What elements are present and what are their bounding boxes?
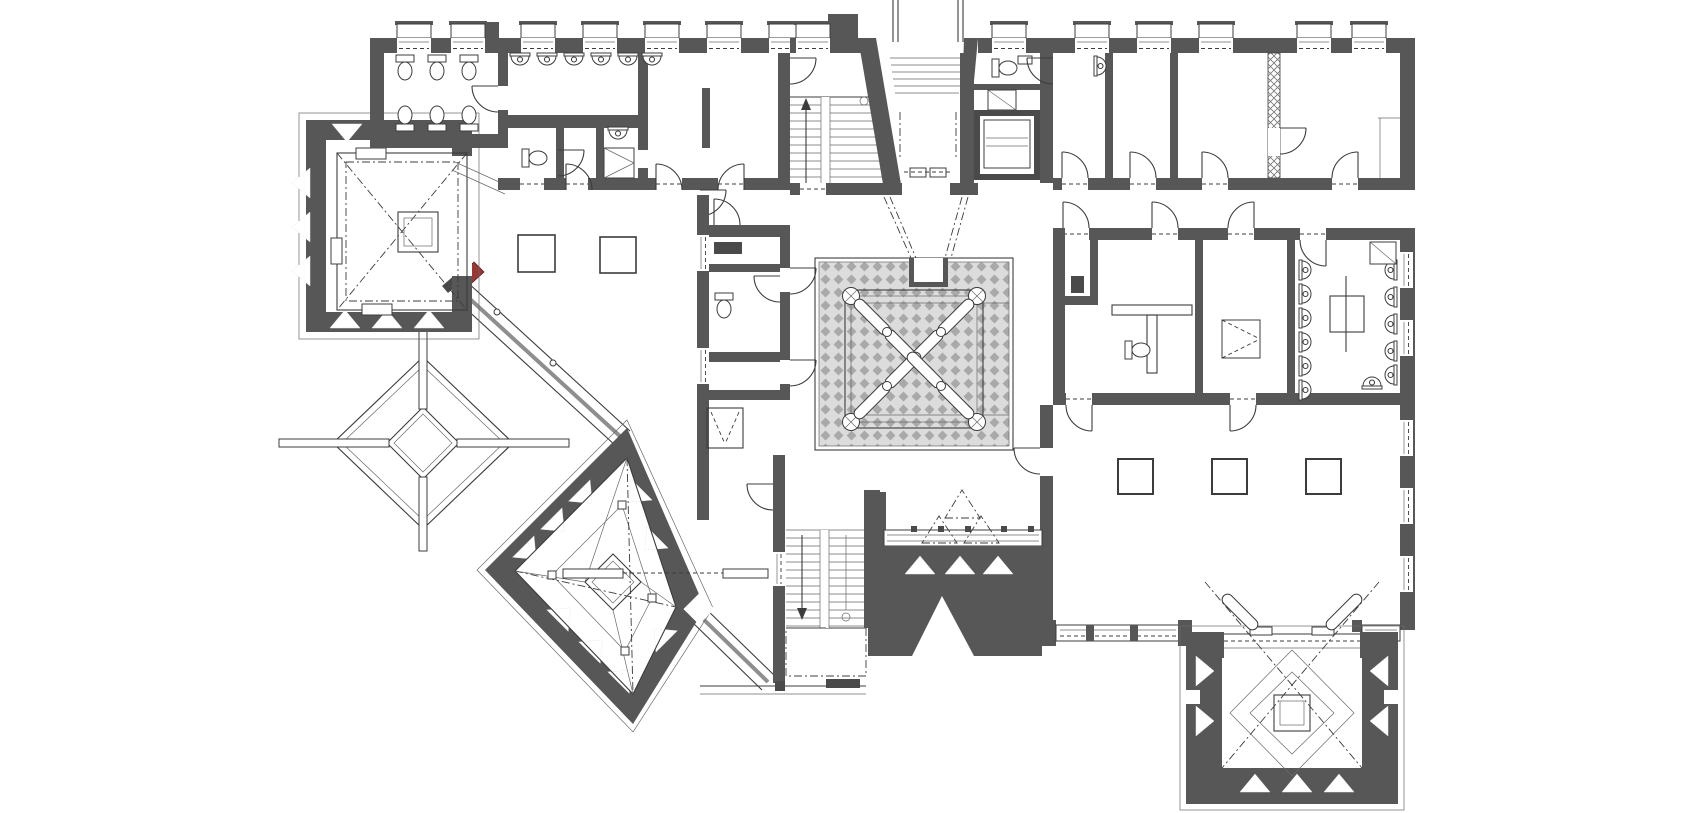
- southeast-skylight-tower: [1180, 582, 1404, 810]
- ornament-arm-north: [419, 328, 427, 409]
- wash-basin-icon: [510, 53, 530, 65]
- skylight-box: [707, 408, 743, 448]
- central-atrium: [815, 197, 1013, 450]
- urinal-icon: [1299, 260, 1311, 280]
- glass-block-partition: [1268, 53, 1280, 178]
- southeast-hall: [1014, 405, 1415, 646]
- canopy-dash-icon: [884, 197, 968, 258]
- ornament-arm-east: [457, 439, 569, 447]
- toilet-icon: [992, 59, 1017, 77]
- square-column-icon: [518, 235, 555, 272]
- window-icon: [697, 235, 710, 271]
- shower-icon: [604, 148, 634, 178]
- toilet-icon: [715, 293, 733, 318]
- south-window-band-west: [1040, 620, 1192, 646]
- floor-plan-canvas: [0, 0, 1700, 813]
- ornament-arm-south: [419, 477, 427, 551]
- seminar-partition: [702, 88, 710, 148]
- south-entrance: [868, 490, 1042, 656]
- entrance-rails: [893, 0, 963, 42]
- garden-diamond-ornament: [279, 328, 569, 551]
- northwest-wing: [370, 21, 838, 216]
- northeast-wing: [1053, 21, 1415, 190]
- double-door-leaf: [930, 168, 946, 177]
- tower-cross-bar: [563, 569, 623, 578]
- atrium-west-rooms: [697, 195, 816, 455]
- window-icon: [395, 21, 433, 53]
- southwest-skylight-tower: [477, 420, 768, 732]
- east-service-strip: [1053, 202, 1415, 431]
- double-door-leaf: [910, 168, 926, 177]
- west-hall-columns: [518, 235, 636, 273]
- elevator-car-icon: [984, 120, 1030, 168]
- door-swing-icon: [472, 86, 498, 112]
- square-column-icon: [1118, 459, 1153, 494]
- north-staircase: [790, 14, 902, 195]
- ornament-arm-west: [279, 439, 389, 447]
- square-column-icon: [600, 237, 636, 273]
- floor-plan-drawing: [0, 0, 1700, 813]
- toilet-icon: [396, 55, 414, 80]
